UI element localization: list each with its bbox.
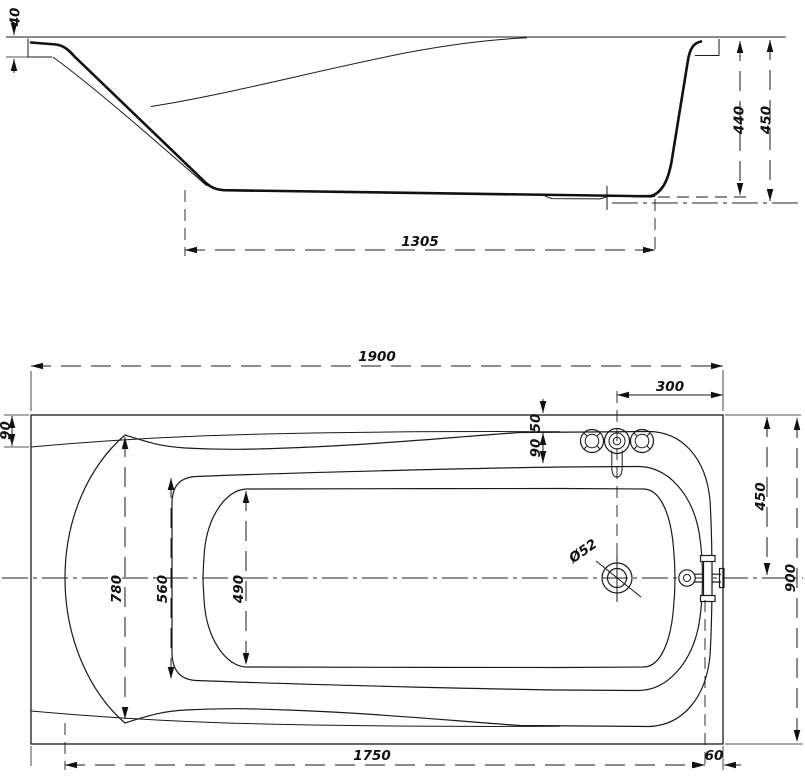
dim-label-1900: 1900 <box>358 349 396 365</box>
plan-rim-outer-bottom <box>31 711 560 726</box>
dim-label-drain-diameter: Ø52 <box>565 536 600 567</box>
dim-label-440: 440 <box>732 106 748 135</box>
plan-waterline-contour <box>172 467 703 691</box>
dim-label-40: 40 <box>8 8 24 28</box>
drain-leader-line <box>596 561 641 597</box>
dim-label-1305: 1305 <box>401 234 439 250</box>
drawing-canvas: 40 1305 440 450 <box>0 0 805 782</box>
side-tub-profile <box>31 43 654 197</box>
dim-label-450-side: 450 <box>759 106 775 135</box>
dim-label-90-faucet: 90 <box>528 439 544 458</box>
dim-label-60: 60 <box>705 748 724 764</box>
side-left-outer-wall <box>53 57 207 186</box>
dim-label-300: 300 <box>656 379 684 395</box>
plan-view: Ø52 1900 300 50 90 90 <box>0 349 803 770</box>
faucet-handle-left <box>581 430 604 453</box>
faucet-handle-right <box>631 430 654 453</box>
dim-label-450-plan: 450 <box>753 482 769 511</box>
side-right-wall <box>650 42 701 197</box>
bathtub-technical-drawing: 40 1305 440 450 <box>0 0 805 782</box>
dim-label-50: 50 <box>528 414 544 433</box>
dim-label-490: 490 <box>231 575 247 604</box>
dim-label-90-head: 90 <box>0 421 14 440</box>
plan-rim-outer-top <box>31 432 560 447</box>
dim-label-900: 900 <box>783 564 799 592</box>
overflow-fitting <box>679 556 724 602</box>
side-view: 40 1305 440 450 <box>6 8 798 256</box>
dim-label-780: 780 <box>109 575 125 603</box>
dim-label-560: 560 <box>155 575 171 603</box>
dim-label-1750: 1750 <box>353 748 391 764</box>
side-interior-curve <box>151 38 527 107</box>
